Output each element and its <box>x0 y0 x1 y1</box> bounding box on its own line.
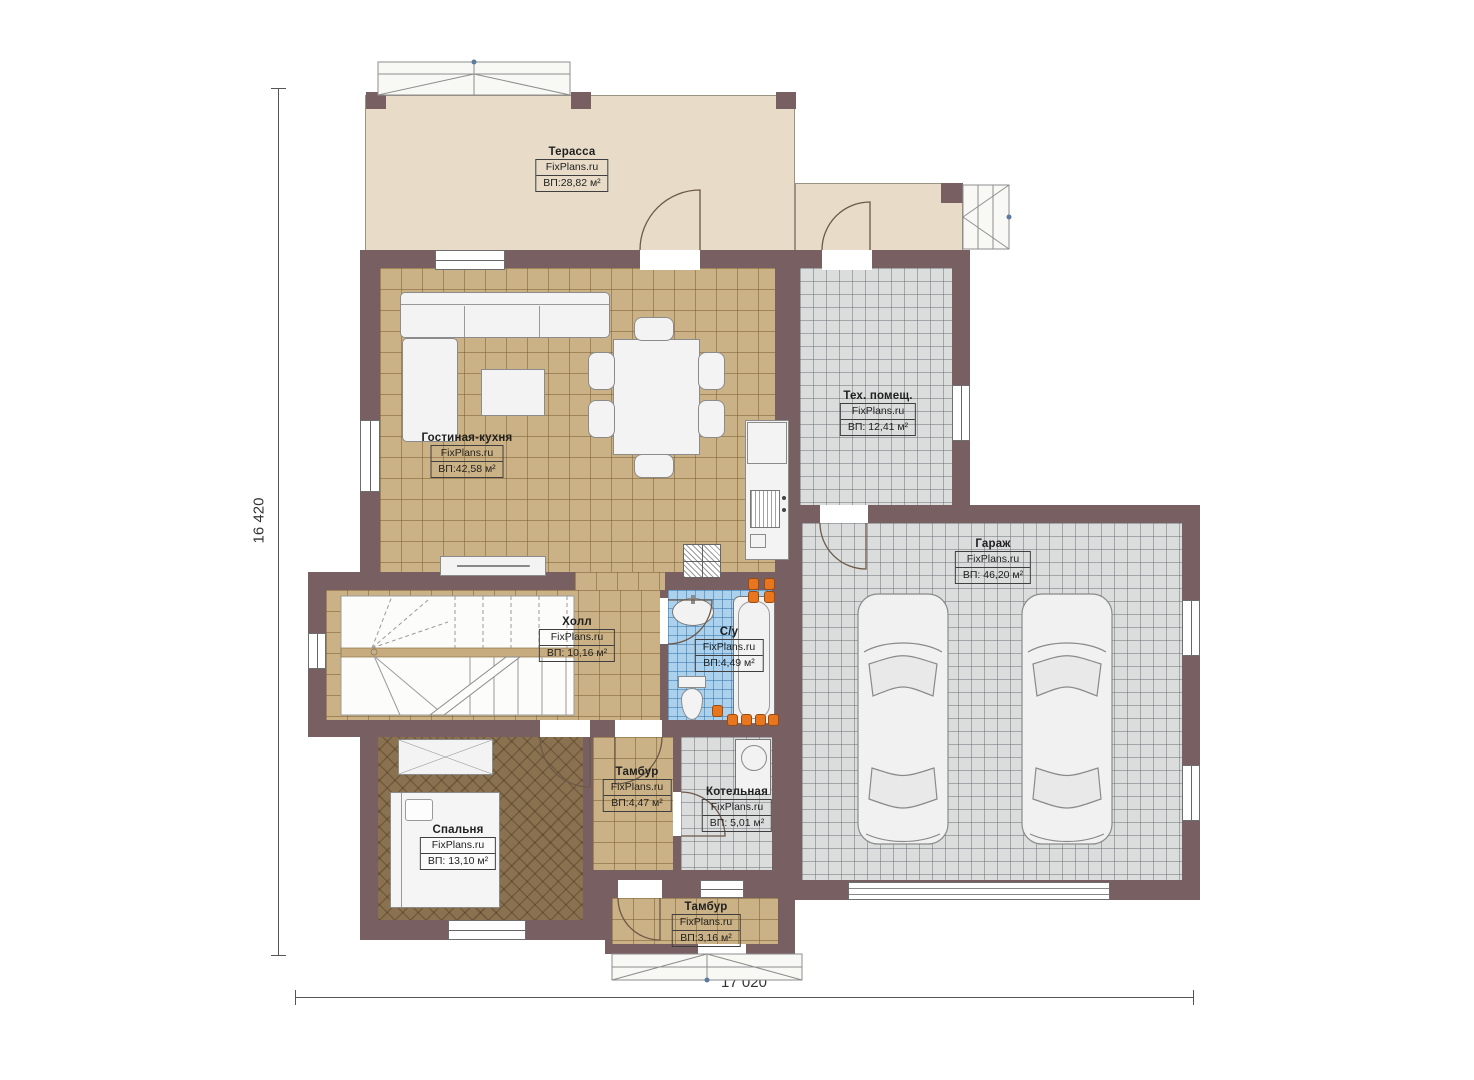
garage-gate <box>848 882 1110 900</box>
dimension-tick <box>271 955 286 956</box>
room-label-tambour1: Тамбур FixPlans.ru ВП:4,47 м² <box>603 766 672 812</box>
terrace-pillar <box>941 183 963 203</box>
room-area: ВП: 46,20 м² <box>956 568 1030 583</box>
room-area: ВП: 13,10 м² <box>421 854 495 869</box>
window <box>435 250 505 270</box>
tambour1-door-opening <box>615 720 662 737</box>
dimension-text: 16 420 <box>250 498 267 544</box>
entry-steps-right <box>963 185 1012 249</box>
room-info-box: FixPlans.ru ВП:28,82 м² <box>535 159 608 192</box>
terrace-extension-floor <box>795 183 963 252</box>
entry-steps-bottom <box>612 954 802 983</box>
dimension-line-vertical <box>278 88 279 955</box>
tech-room-floor <box>800 268 952 505</box>
room-name: Гараж <box>955 538 1031 550</box>
sofa-chaise <box>402 338 458 442</box>
room-info-box: FixPlans.ru ВП:4,49 м² <box>695 639 764 672</box>
room-label-boiler: Котельная FixPlans.ru ВП: 5,01 м² <box>702 786 772 832</box>
room-label-hall: Холл FixPlans.ru ВП: 10,16 м² <box>539 616 615 662</box>
room-label-bathroom: С/у FixPlans.ru ВП:4,49 м² <box>695 626 764 672</box>
room-name: Гостиная-кухня <box>422 432 513 444</box>
room-area: ВП:3,16 м² <box>673 931 740 946</box>
heating-unit <box>755 714 766 726</box>
room-label-tech: Тех. помещ. FixPlans.ru ВП: 12,41 м² <box>840 390 916 436</box>
coffee-table <box>481 369 545 416</box>
brand-text: FixPlans.ru <box>604 780 671 796</box>
sofa <box>400 292 610 338</box>
tv-stand <box>440 556 546 576</box>
room-area: ВП: 5,01 м² <box>703 816 771 831</box>
heating-unit <box>764 591 775 603</box>
room-info-box: FixPlans.ru ВП:42,58 м² <box>430 445 503 478</box>
bedroom-door-opening <box>540 720 590 737</box>
room-name: Тамбур <box>603 766 672 778</box>
room-label-terrace: Терасса FixPlans.ru ВП:28,82 м² <box>535 146 608 192</box>
brand-text: FixPlans.ru <box>673 915 740 931</box>
heating-unit <box>748 591 759 603</box>
chair <box>634 454 674 478</box>
tech-terrace-door-opening <box>822 250 872 270</box>
window <box>952 385 970 441</box>
terrace-pillar <box>366 92 386 109</box>
heating-unit <box>748 578 759 590</box>
room-name: Терасса <box>535 146 608 158</box>
room-name: Тамбур <box>672 901 741 913</box>
brand-text: FixPlans.ru <box>696 640 763 656</box>
sink-dot <box>782 508 786 512</box>
bathroom-door-opening <box>660 598 668 644</box>
room-name: С/у <box>695 626 764 638</box>
dimension-height-label: 16 420 <box>250 498 267 544</box>
room-info-box: FixPlans.ru ВП: 13,10 м² <box>420 837 496 870</box>
kitchen-cabinet <box>750 534 766 548</box>
window <box>1182 765 1200 821</box>
room-info-box: FixPlans.ru ВП: 5,01 м² <box>702 799 772 832</box>
heating-unit <box>768 714 779 726</box>
chair <box>698 400 725 438</box>
brand-text: FixPlans.ru <box>536 160 607 176</box>
room-name: Спальня <box>420 824 496 836</box>
boiler-door-opening <box>673 792 681 836</box>
dimension-tick <box>295 990 296 1005</box>
brand-text: FixPlans.ru <box>703 800 771 816</box>
room-info-box: FixPlans.ru ВП: 10,16 м² <box>539 629 615 662</box>
brand-text: FixPlans.ru <box>421 838 495 854</box>
chair <box>698 352 725 390</box>
window <box>1182 600 1200 656</box>
chair <box>588 400 615 438</box>
brand-text: FixPlans.ru <box>841 404 915 420</box>
dimension-tick <box>271 88 286 89</box>
room-area: ВП: 12,41 м² <box>841 420 915 435</box>
heating-unit <box>712 705 723 717</box>
awning-symbol <box>378 60 570 96</box>
chair <box>634 317 674 341</box>
terrace-pillar <box>571 92 591 109</box>
room-area: ВП: 10,16 м² <box>540 646 614 661</box>
room-area: ВП:4,47 м² <box>604 796 671 811</box>
toilet-tank <box>678 676 706 688</box>
terrace-door-opening <box>640 250 700 270</box>
room-info-box: FixPlans.ru ВП:3,16 м² <box>672 914 741 947</box>
window <box>700 880 744 898</box>
room-area: ВП:28,82 м² <box>536 176 607 191</box>
room-name: Тех. помещ. <box>840 390 916 402</box>
room-label-garage: Гараж FixPlans.ru ВП: 46,20 м² <box>955 538 1031 584</box>
heating-unit <box>727 714 738 726</box>
sink-dot <box>782 496 786 500</box>
room-area: ВП:42,58 м² <box>431 462 502 477</box>
window <box>308 633 326 669</box>
fridge <box>747 422 787 464</box>
dimension-width-label: 17 020 <box>721 974 767 991</box>
window <box>448 920 526 940</box>
room-name: Котельная <box>702 786 772 798</box>
hall-living-opening <box>575 572 665 590</box>
room-label-living-kitchen: Гостиная-кухня FixPlans.ru ВП:42,58 м² <box>422 432 513 478</box>
dimension-tick <box>1193 990 1194 1005</box>
dining-table <box>613 339 700 455</box>
tambour2-door-opening <box>618 880 662 898</box>
stove <box>683 544 721 578</box>
brand-text: FixPlans.ru <box>956 552 1030 568</box>
room-info-box: FixPlans.ru ВП: 46,20 м² <box>955 551 1031 584</box>
washbasin <box>672 598 714 626</box>
heating-unit <box>741 714 752 726</box>
kitchen-sink-drainer <box>750 490 780 528</box>
floor-plan: Терасса FixPlans.ru ВП:28,82 м² Гостиная… <box>0 0 1474 1080</box>
dimension-text: 17 020 <box>721 974 767 991</box>
chair <box>588 352 615 390</box>
room-area: ВП:4,49 м² <box>696 656 763 671</box>
room-info-box: FixPlans.ru ВП: 12,41 м² <box>840 403 916 436</box>
room-label-bedroom: Спальня FixPlans.ru ВП: 13,10 м² <box>420 824 496 870</box>
wardrobe <box>398 739 493 775</box>
tech-garage-door-opening <box>820 505 868 523</box>
room-info-box: FixPlans.ru ВП:4,47 м² <box>603 779 672 812</box>
window <box>360 420 380 492</box>
brand-text: FixPlans.ru <box>540 630 614 646</box>
brand-text: FixPlans.ru <box>431 446 502 462</box>
room-label-tambour2: Тамбур FixPlans.ru ВП:3,16 м² <box>672 901 741 947</box>
heating-unit <box>764 578 775 590</box>
terrace-pillar <box>776 92 796 109</box>
dimension-line-horizontal <box>295 997 1193 998</box>
room-name: Холл <box>539 616 615 628</box>
